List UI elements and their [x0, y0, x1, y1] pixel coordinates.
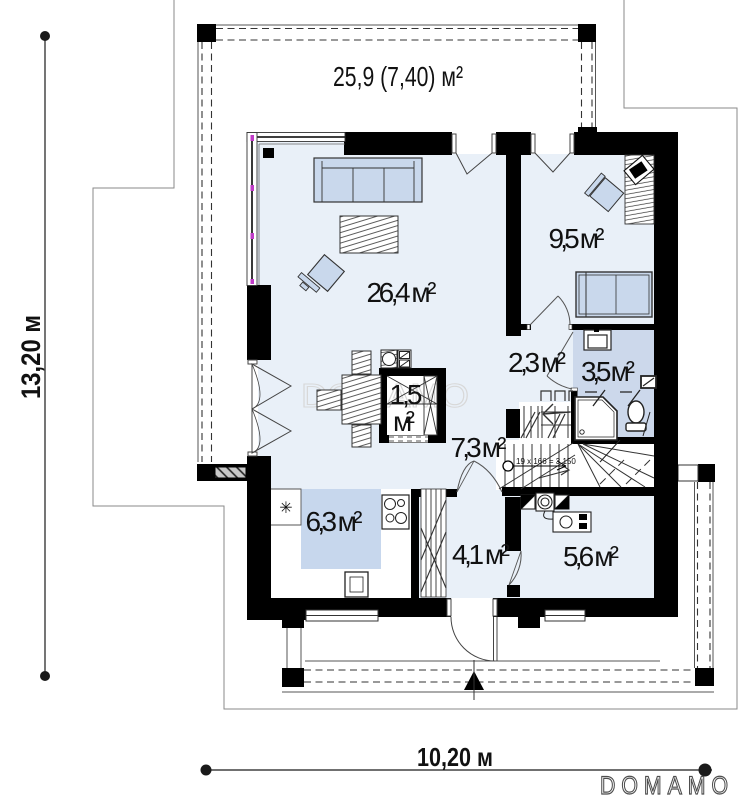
svg-text:25,9 (7,40) м²: 25,9 (7,40) м²: [333, 61, 463, 92]
svg-text:10,20 м: 10,20 м: [417, 742, 493, 772]
svg-text:5,6 м²: 5,6 м²: [563, 541, 619, 572]
svg-text:м²: м²: [393, 406, 415, 437]
svg-text:2,3 м²: 2,3 м²: [508, 347, 566, 378]
svg-text:13,20 м: 13,20 м: [16, 315, 46, 399]
svg-text:9,5 м²: 9,5 м²: [549, 223, 605, 254]
svg-text:DOMAMO: DOMAMO: [600, 772, 734, 800]
svg-text:3,5 м²: 3,5 м²: [581, 356, 635, 387]
svg-text:✳: ✳: [279, 500, 292, 517]
svg-text:6,3 м²: 6,3 м²: [306, 506, 363, 537]
svg-text:4,1 м²: 4,1 м²: [452, 539, 510, 570]
svg-text:26,4 м²: 26,4 м²: [367, 277, 437, 308]
svg-text:7,3 м²: 7,3 м²: [451, 432, 507, 463]
svg-text:19 x 166 = 3 150: 19 x 166 = 3 150: [516, 457, 576, 466]
